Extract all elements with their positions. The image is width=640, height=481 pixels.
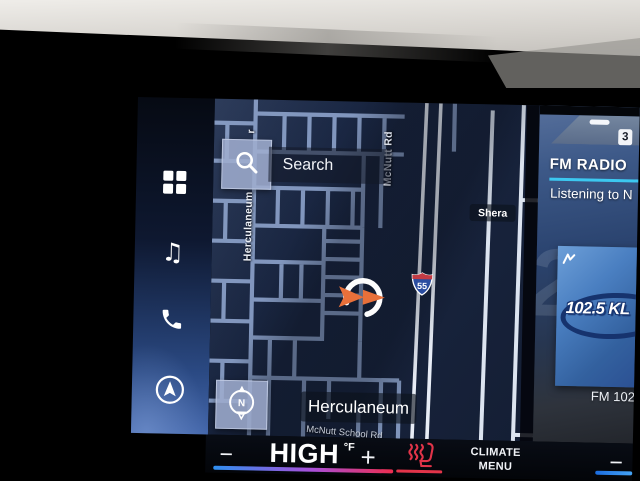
driver-temp-unit: °F — [344, 441, 355, 453]
navigation-arrow-icon — [153, 373, 186, 411]
street-label-partial: r — [245, 125, 257, 137]
driver-temp-minus-button[interactable]: − — [219, 443, 233, 466]
magnifier-icon — [232, 147, 261, 181]
city-label: Herculaneum — [300, 391, 417, 423]
sidebar-item-phone[interactable] — [153, 303, 190, 340]
climate-bar: − HIGH °F + CLIMATE MENU — [205, 434, 633, 481]
phone-icon — [158, 306, 184, 337]
widget-drag-handle[interactable] — [590, 119, 610, 124]
radio-title: FM RADIO — [550, 156, 628, 175]
driver-temp-plus-button[interactable]: + — [360, 444, 376, 470]
climate-menu-line1: CLIMATE — [463, 445, 527, 461]
interstate-55-shield: 55 — [411, 272, 434, 301]
radio-accent-rule — [549, 178, 638, 182]
map-canvas[interactable]: Herculaneum r McNutt Rd Search 55 — [208, 99, 540, 442]
road-label-sheraton: Shera — [469, 204, 515, 222]
climate-menu-line2: MENU — [463, 459, 527, 475]
passenger-temp-bar — [595, 471, 632, 475]
seat-heater-level-bar — [396, 469, 442, 473]
driver-temp-value: HIGH — [269, 438, 339, 469]
sidebar-item-navigation[interactable] — [151, 373, 188, 410]
current-location-marker — [336, 273, 389, 327]
driver-temp-display[interactable]: HIGH °F — [269, 440, 355, 469]
search-button[interactable] — [221, 139, 272, 190]
compass-icon: N — [224, 384, 259, 426]
sidebar: ♫ — [131, 97, 215, 435]
infotainment-screen: ♫ — [130, 97, 640, 481]
fm-radio-widget[interactable]: 3 FM RADIO Listening to N 2 102.5 KL FM … — [533, 105, 640, 443]
station-caption: FM 102 — [591, 389, 635, 405]
shield-number: 55 — [417, 281, 427, 291]
apps-grid-icon — [161, 168, 188, 200]
search-label: Search — [282, 156, 333, 175]
sidebar-item-apps[interactable] — [156, 165, 193, 202]
compass-button[interactable]: N — [215, 380, 268, 430]
station-logo-text: 102.5 KL — [565, 299, 629, 319]
radio-now-playing: Listening to N — [550, 186, 633, 203]
compass-n-label: N — [238, 398, 245, 409]
music-note-icon: ♫ — [161, 239, 184, 264]
sidebar-item-media[interactable]: ♫ — [154, 233, 191, 270]
climate-menu-button[interactable]: CLIMATE MENU — [463, 445, 528, 475]
preset-number-badge: 3 — [618, 129, 632, 145]
search-label-band[interactable]: Search — [268, 147, 391, 185]
audacy-logo-icon — [562, 251, 575, 269]
album-art: 102.5 KL — [555, 246, 640, 388]
widget-top-strip — [540, 105, 640, 116]
